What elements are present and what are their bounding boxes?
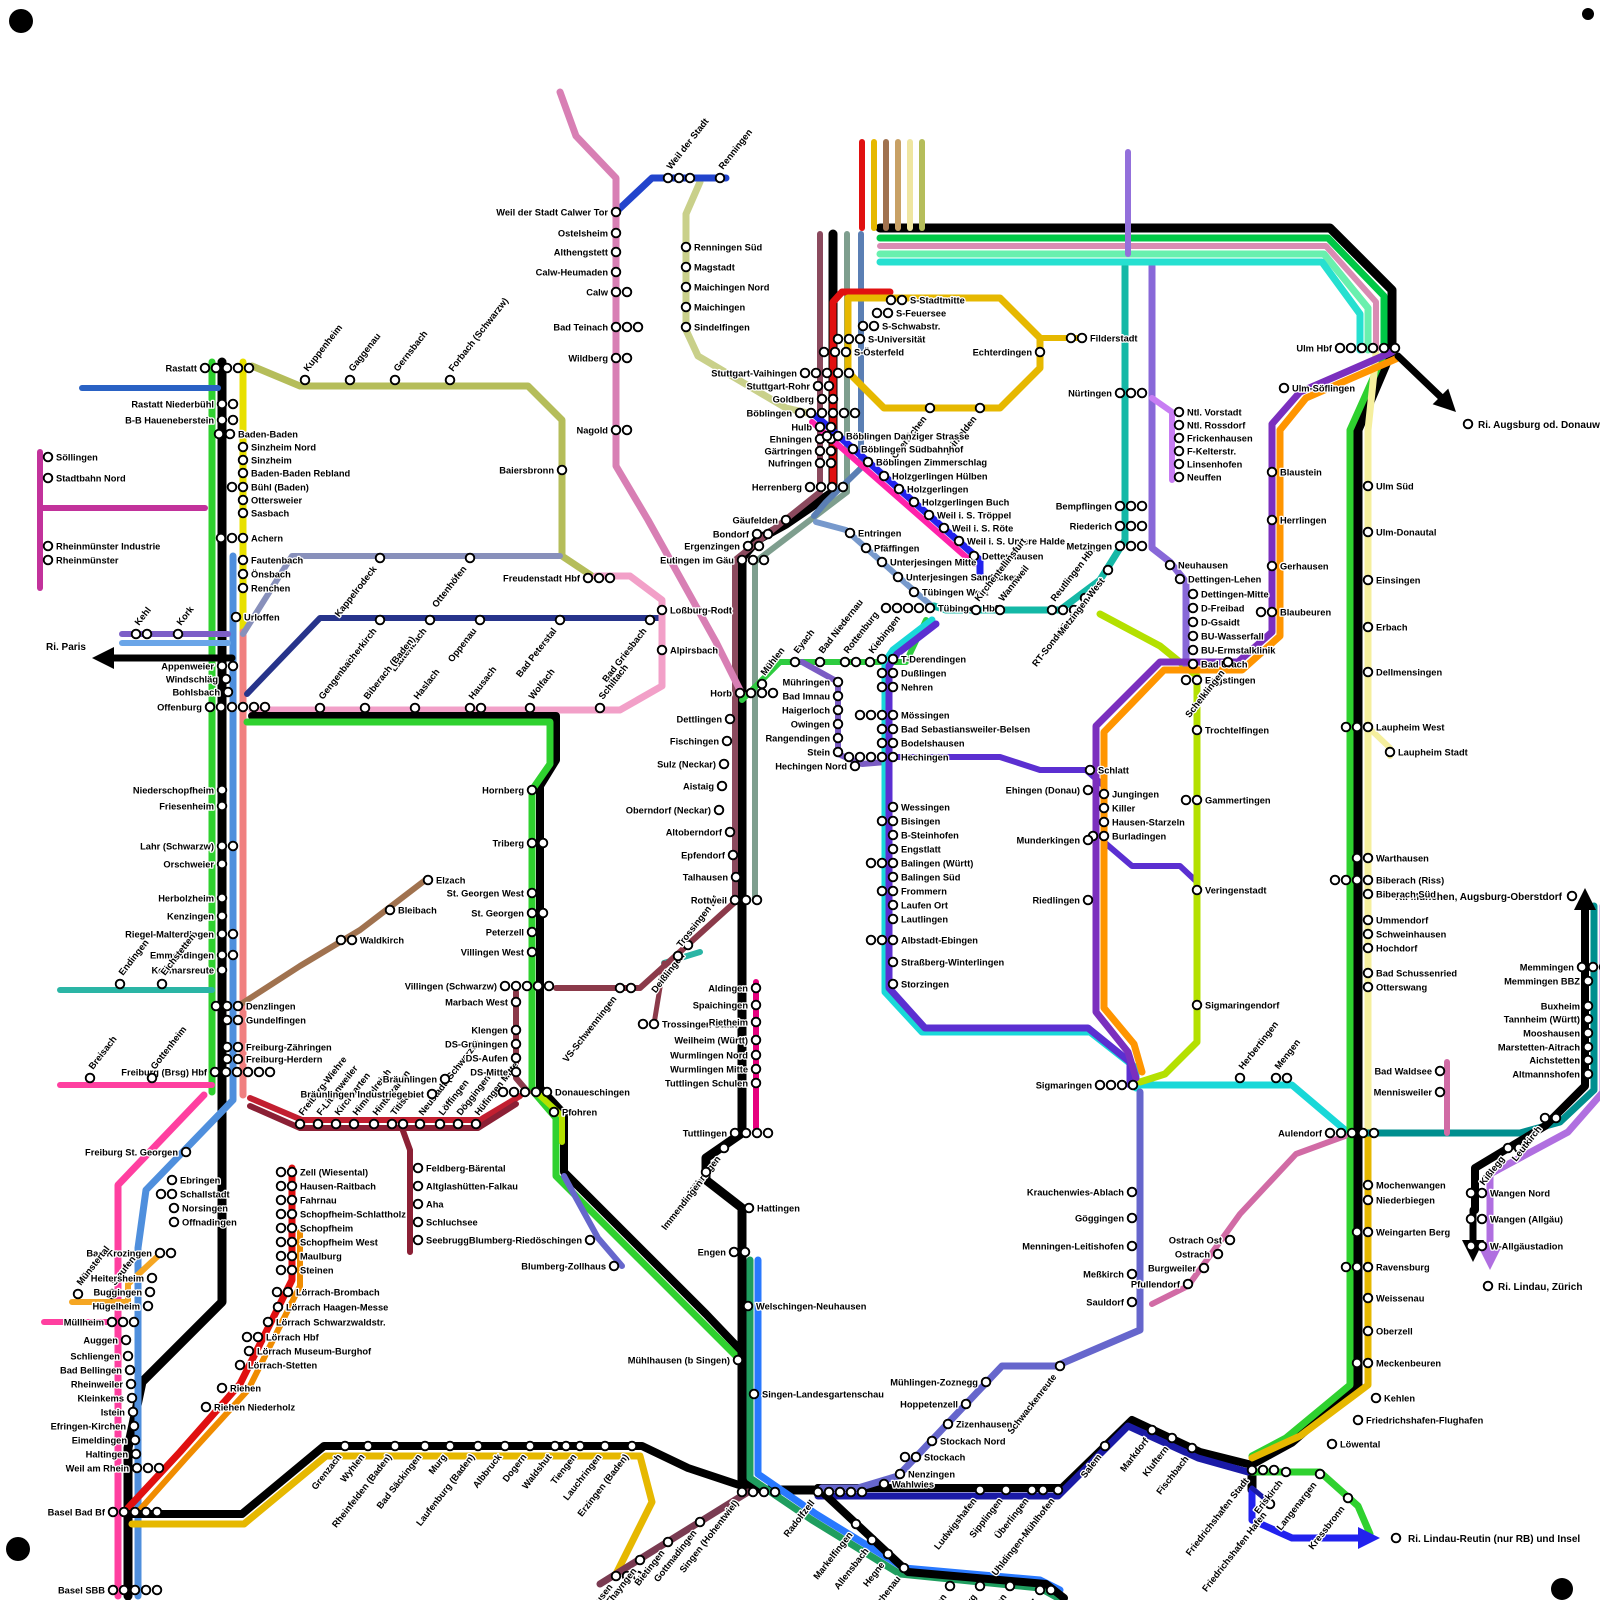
station-marker bbox=[1036, 348, 1045, 357]
station-marker bbox=[889, 711, 898, 720]
station-marker bbox=[658, 646, 667, 655]
station-marker bbox=[894, 573, 903, 582]
station-label: Haltingen bbox=[86, 1449, 129, 1459]
station-label: Söllingen bbox=[56, 452, 98, 462]
station-marker bbox=[1270, 1466, 1279, 1475]
station-marker bbox=[610, 1262, 619, 1271]
station-label: Altoberndorf bbox=[666, 827, 723, 837]
station-label: Weingarten Berg bbox=[1376, 1227, 1451, 1237]
station-label: Fahrnau bbox=[300, 1195, 337, 1205]
station-marker bbox=[288, 1266, 297, 1275]
station-marker bbox=[845, 335, 854, 344]
station-label: Ebringen bbox=[180, 1175, 221, 1185]
station-marker bbox=[528, 928, 537, 937]
station-marker bbox=[250, 703, 259, 712]
station-marker bbox=[755, 542, 764, 551]
station-label: Wangen (Allgäu) bbox=[1490, 1214, 1563, 1224]
direction-arrow-label: Ri. Lindau-Reutin (nur RB) und Insel bbox=[1408, 1534, 1580, 1545]
station-marker bbox=[1347, 344, 1356, 353]
station-label: Bad Waldsee bbox=[1374, 1066, 1432, 1076]
station-label: Altmannshofen bbox=[1512, 1069, 1580, 1079]
station-label: Lörrach-Stetten bbox=[248, 1360, 318, 1370]
station-marker bbox=[130, 1318, 139, 1327]
station-marker bbox=[834, 734, 843, 743]
station-marker bbox=[753, 530, 762, 539]
direction-arrow-label: Ri. Augsburg od. Donauwörth bbox=[1478, 420, 1600, 431]
station-label: Goldberg bbox=[773, 394, 815, 404]
station-marker bbox=[1128, 1188, 1137, 1197]
station-marker bbox=[823, 369, 832, 378]
station-marker bbox=[108, 1318, 117, 1327]
station-label: Ludwigshafen bbox=[932, 1496, 979, 1552]
station-label: Loßburg-Rodt bbox=[670, 605, 732, 615]
station-label: Ostelsheim bbox=[558, 228, 608, 238]
station-marker bbox=[910, 588, 919, 597]
station-marker bbox=[1138, 522, 1147, 531]
station-marker bbox=[314, 1120, 323, 1129]
station-label: Menningen-Leitishofen bbox=[1022, 1241, 1124, 1251]
station-label: Maichingen Nord bbox=[694, 282, 770, 292]
station-label: Efringen-Kirchen bbox=[51, 1421, 127, 1431]
station-marker bbox=[856, 711, 865, 720]
station-marker bbox=[229, 662, 238, 671]
station-label: Basel SBB bbox=[58, 1585, 105, 1595]
direction-arrow-head bbox=[92, 647, 114, 669]
station-marker bbox=[858, 1488, 867, 1497]
station-marker bbox=[1584, 977, 1593, 986]
station-marker bbox=[155, 1464, 164, 1473]
station-marker bbox=[229, 416, 238, 425]
station-marker bbox=[639, 1020, 648, 1029]
station-label: Weil der Stadt Calwer Tor bbox=[496, 207, 608, 217]
station-label: Rangendingen bbox=[765, 733, 830, 743]
station-marker bbox=[1054, 1486, 1063, 1495]
station-label: Sindelfingen bbox=[694, 322, 750, 332]
station-marker bbox=[880, 1480, 889, 1489]
station-marker bbox=[716, 174, 725, 183]
station-marker bbox=[1584, 1015, 1593, 1024]
station-label: Welschingen-Neuhausen bbox=[756, 1301, 867, 1311]
station-marker bbox=[675, 174, 684, 183]
station-marker bbox=[370, 1120, 379, 1129]
station-marker bbox=[1116, 522, 1125, 531]
station-label: Hausen-Starzeln bbox=[1112, 817, 1185, 827]
station-label: Immendingen bbox=[659, 1178, 704, 1232]
station-label: Feldberg-Bärental bbox=[426, 1163, 506, 1173]
direction-arrow-label: Ri. Lindau, Zürich bbox=[1498, 1282, 1582, 1293]
station-marker bbox=[889, 887, 898, 896]
station-label: Sulz (Neckar) bbox=[657, 759, 716, 769]
station-marker bbox=[1200, 1264, 1209, 1273]
station-marker bbox=[386, 906, 395, 915]
station-marker bbox=[816, 423, 825, 432]
station-label: Böblingen Zimmerschlag bbox=[876, 457, 987, 467]
station-marker bbox=[1584, 1002, 1593, 1011]
station-label: Gerhausen bbox=[1280, 561, 1329, 571]
station-marker bbox=[1259, 1466, 1268, 1475]
station-marker bbox=[466, 704, 475, 713]
station-marker bbox=[878, 739, 887, 748]
station-marker bbox=[1036, 1586, 1045, 1595]
station-marker bbox=[752, 1065, 761, 1074]
station-marker bbox=[1478, 1189, 1487, 1198]
rail-line bbox=[1368, 354, 1376, 1133]
station-marker bbox=[131, 1586, 140, 1595]
station-marker bbox=[1214, 1250, 1223, 1259]
station-label: Burgweiler bbox=[1148, 1263, 1196, 1273]
station-marker bbox=[436, 1120, 445, 1129]
station-label: Riegel-Malterdingen bbox=[125, 929, 214, 939]
station-marker bbox=[1138, 389, 1147, 398]
station-label: Freiburg St. Georgen bbox=[85, 1147, 178, 1157]
station-marker bbox=[900, 1564, 909, 1573]
station-marker bbox=[44, 542, 53, 551]
station-marker bbox=[466, 554, 475, 563]
station-marker bbox=[1028, 1486, 1037, 1495]
station-label: Eyach bbox=[792, 627, 817, 655]
station-marker bbox=[274, 1303, 283, 1312]
station-marker bbox=[867, 859, 876, 868]
station-marker bbox=[878, 711, 887, 720]
station-marker bbox=[696, 1518, 705, 1527]
station-label: Aichstetten bbox=[1529, 1055, 1580, 1065]
station-marker bbox=[1268, 608, 1277, 617]
station-marker bbox=[650, 1020, 659, 1029]
station-marker bbox=[1002, 1486, 1011, 1495]
rail-network-map: Ri. ParisRi. Augsburg od. DonauwörthRi. … bbox=[0, 0, 1600, 1600]
station-label: VS-Schwenningen bbox=[561, 994, 619, 1064]
station-label: Ehningen bbox=[770, 434, 813, 444]
station-marker bbox=[827, 459, 836, 468]
station-marker bbox=[731, 1129, 740, 1138]
station-marker bbox=[816, 658, 825, 667]
station-marker bbox=[901, 1453, 910, 1462]
station-marker bbox=[532, 1088, 541, 1097]
station-marker bbox=[1584, 1056, 1593, 1065]
station-marker bbox=[940, 524, 949, 533]
station-label: Blumberg-Riedöschingen bbox=[469, 1235, 582, 1245]
station-marker bbox=[1353, 1228, 1362, 1237]
station-marker bbox=[1364, 576, 1373, 585]
station-marker bbox=[168, 1176, 177, 1185]
station-marker bbox=[1189, 660, 1198, 669]
rail-line bbox=[686, 182, 812, 414]
station-label: Fischingen bbox=[670, 736, 719, 746]
station-label: BU-Wasserfall bbox=[1201, 631, 1264, 641]
station-marker bbox=[829, 395, 838, 404]
station-label: Seebrugg bbox=[426, 1235, 469, 1245]
station-marker bbox=[742, 896, 751, 905]
station-label: Hegne bbox=[861, 1560, 886, 1589]
station-marker bbox=[734, 1356, 743, 1365]
station-label: Ottersweier bbox=[251, 495, 303, 505]
station-label: Schlatt bbox=[1098, 765, 1129, 775]
station-marker bbox=[1359, 1129, 1368, 1138]
station-marker bbox=[1364, 876, 1373, 885]
station-marker bbox=[1578, 963, 1587, 972]
station-label: Ummendorf bbox=[1376, 915, 1429, 925]
station-marker bbox=[1372, 1394, 1381, 1403]
station-marker bbox=[1048, 606, 1057, 615]
station-marker bbox=[1039, 1486, 1048, 1495]
station-marker bbox=[829, 409, 838, 418]
station-label: Eriskirch bbox=[1252, 1478, 1285, 1516]
station-marker bbox=[744, 1302, 753, 1311]
station-marker bbox=[218, 662, 227, 671]
station-marker bbox=[1364, 983, 1373, 992]
station-marker bbox=[277, 1168, 286, 1177]
station-label: Villingen West bbox=[461, 947, 524, 957]
station-marker bbox=[846, 529, 855, 538]
station-label: Renningen Süd bbox=[694, 242, 762, 252]
station-marker bbox=[148, 1074, 157, 1083]
station-label: Kehlen bbox=[1384, 1393, 1415, 1403]
station-label: Kork bbox=[175, 604, 196, 628]
station-label: Bondorf bbox=[713, 529, 750, 539]
station-label: Unterjesingen Mitte bbox=[890, 557, 976, 567]
station-marker bbox=[1342, 876, 1351, 885]
station-marker bbox=[446, 376, 455, 385]
station-marker bbox=[636, 1556, 645, 1565]
station-label: Stuttgart-Vaihingen bbox=[711, 368, 797, 378]
station-label: Istein bbox=[101, 1407, 126, 1417]
station-label: Freudenstadt Hbf bbox=[503, 573, 581, 583]
station-marker bbox=[836, 1488, 845, 1497]
station-marker bbox=[1353, 723, 1362, 732]
station-label: Ravensburg bbox=[1376, 1262, 1430, 1272]
station-marker bbox=[130, 1422, 139, 1431]
station-label: Weil der Stadt bbox=[665, 116, 711, 171]
station-marker bbox=[1342, 1263, 1351, 1272]
station-label: Mühlingen-Zoznegg bbox=[890, 1377, 978, 1387]
station-marker bbox=[889, 803, 898, 812]
station-marker bbox=[521, 1088, 530, 1097]
station-marker bbox=[1268, 562, 1277, 571]
station-marker bbox=[732, 873, 741, 882]
station-marker bbox=[217, 534, 226, 543]
station-marker bbox=[856, 753, 865, 762]
station-label: Gernsbach bbox=[392, 329, 430, 374]
station-label: Baiersbronn bbox=[499, 465, 554, 475]
station-marker bbox=[827, 447, 836, 456]
rail-line bbox=[1136, 1085, 1345, 1130]
station-marker bbox=[202, 1403, 211, 1412]
station-label: Tübingen Hbf bbox=[938, 603, 999, 613]
station-marker bbox=[1272, 1074, 1281, 1083]
rail-line bbox=[402, 1128, 410, 1252]
station-marker bbox=[142, 1586, 151, 1595]
station-marker bbox=[817, 483, 826, 492]
station-label: Gengenbach bbox=[317, 650, 360, 701]
station-label: Bad Teinach bbox=[553, 322, 608, 332]
station-marker bbox=[1589, 963, 1598, 972]
station-label: Schluchsee bbox=[426, 1217, 478, 1227]
station-marker bbox=[512, 1054, 521, 1063]
station-marker bbox=[428, 1090, 437, 1099]
station-marker bbox=[870, 322, 879, 331]
station-marker bbox=[749, 1488, 758, 1497]
station-label: Engen bbox=[698, 1247, 727, 1257]
station-label: Pfäffingen bbox=[874, 543, 920, 553]
station-marker bbox=[558, 466, 567, 475]
station-label: Gärtringen bbox=[764, 446, 812, 456]
rail-line bbox=[735, 234, 820, 900]
station-label: Sigmaringendorf bbox=[1205, 1000, 1280, 1010]
station-label: Peterzell bbox=[486, 927, 524, 937]
station-marker bbox=[852, 1520, 861, 1529]
station-label: S-Schwabstr. bbox=[882, 321, 940, 331]
station-label: Aulendorf bbox=[1278, 1128, 1323, 1138]
station-marker bbox=[612, 1572, 621, 1581]
station-label: Horb bbox=[710, 688, 732, 698]
station-marker bbox=[889, 980, 898, 989]
station-marker bbox=[170, 1218, 179, 1227]
station-marker bbox=[812, 369, 821, 378]
station-label: Wildberg bbox=[568, 353, 608, 363]
station-marker bbox=[364, 1442, 373, 1451]
station-label: Alpirsbach bbox=[670, 645, 718, 655]
station-marker bbox=[414, 1182, 423, 1191]
station-label: Holzgerlingen Buch bbox=[922, 497, 1010, 507]
station-label: Sigmaringen bbox=[1036, 1080, 1093, 1090]
station-marker bbox=[889, 958, 898, 967]
station-marker bbox=[234, 1002, 243, 1011]
station-marker bbox=[551, 1442, 560, 1451]
station-marker bbox=[1078, 334, 1087, 343]
station-label: Aistaig bbox=[683, 781, 714, 791]
station-marker bbox=[753, 896, 762, 905]
station-marker bbox=[132, 1450, 141, 1459]
station-label: Elzach bbox=[436, 875, 466, 885]
station-label: St. Georgen West bbox=[447, 888, 524, 898]
station-marker bbox=[388, 1120, 397, 1129]
station-label: Bempflingen bbox=[1056, 501, 1113, 511]
station-marker bbox=[1193, 726, 1202, 735]
station-marker bbox=[133, 1464, 142, 1473]
station-label: Kappelrodeck bbox=[333, 563, 379, 618]
station-marker bbox=[889, 915, 898, 924]
station-marker bbox=[288, 1238, 297, 1247]
station-marker bbox=[796, 409, 805, 418]
station-marker bbox=[446, 1442, 455, 1451]
station-marker bbox=[1541, 1114, 1550, 1123]
station-marker bbox=[350, 1120, 359, 1129]
station-marker bbox=[878, 817, 887, 826]
station-label: Ostrach Ost bbox=[1169, 1235, 1222, 1245]
station-marker bbox=[1370, 1129, 1379, 1138]
station-label: Rheinmünster bbox=[56, 555, 119, 565]
station-label: Villingen (Schwarzw) bbox=[405, 981, 497, 991]
station-marker bbox=[1193, 676, 1202, 685]
station-label: Haslach bbox=[412, 667, 442, 702]
station-marker bbox=[132, 630, 141, 639]
station-label: Baden-Baden Rebland bbox=[251, 468, 351, 478]
station-marker bbox=[376, 554, 385, 563]
station-marker bbox=[1118, 1081, 1127, 1090]
station-marker bbox=[878, 859, 887, 868]
station-marker bbox=[1096, 1081, 1105, 1090]
station-label: B-Steinhofen bbox=[901, 830, 959, 840]
station-marker bbox=[682, 243, 691, 252]
station-marker bbox=[348, 936, 357, 945]
station-marker bbox=[816, 459, 825, 468]
station-marker bbox=[556, 616, 565, 625]
station-marker bbox=[239, 443, 248, 452]
station-marker bbox=[1168, 1434, 1177, 1443]
station-label: Herrlingen bbox=[1280, 515, 1327, 525]
station-marker bbox=[167, 1249, 176, 1258]
station-label: Blaustein bbox=[1280, 467, 1322, 477]
station-label: Mengen bbox=[1273, 1037, 1303, 1071]
station-label: Eutingen im Gäu bbox=[660, 555, 734, 565]
station-marker bbox=[1380, 344, 1389, 353]
station-marker bbox=[218, 894, 227, 903]
station-marker bbox=[284, 1288, 293, 1297]
station-label: Epfendorf bbox=[681, 850, 726, 860]
station-marker bbox=[867, 753, 876, 762]
station-label: Meckenbeuren bbox=[1376, 1358, 1441, 1368]
station-label: Nagold bbox=[576, 425, 608, 435]
station-marker bbox=[834, 678, 843, 687]
station-marker bbox=[628, 1442, 637, 1451]
rail-line bbox=[616, 178, 726, 298]
station-marker bbox=[1189, 646, 1198, 655]
station-label: Mühringen bbox=[782, 677, 830, 687]
station-marker bbox=[806, 483, 815, 492]
station-label: BU-Ermstalklinik bbox=[1201, 645, 1276, 655]
station-marker bbox=[254, 1333, 263, 1342]
station-label: Ntl. Rossdorf bbox=[1187, 420, 1246, 430]
direction-arrow-head bbox=[1574, 888, 1596, 910]
station-marker bbox=[752, 1079, 761, 1088]
station-marker bbox=[277, 1238, 286, 1247]
station-marker bbox=[1353, 1263, 1362, 1272]
station-marker bbox=[1358, 344, 1367, 353]
station-label: Breisach bbox=[87, 1034, 119, 1071]
station-label: Schopfheim-Schlattholz bbox=[300, 1209, 406, 1219]
station-marker bbox=[1107, 1081, 1116, 1090]
station-label: Blaubeuren bbox=[1280, 607, 1331, 617]
station-marker bbox=[218, 1384, 227, 1393]
station-label: Böblingen bbox=[747, 408, 793, 418]
station-marker bbox=[228, 483, 237, 492]
station-label: Kuppenheim bbox=[302, 323, 345, 374]
station-marker bbox=[211, 1068, 220, 1077]
station-marker bbox=[116, 980, 125, 989]
station-marker bbox=[1193, 886, 1202, 895]
station-label: Offnadingen bbox=[182, 1217, 237, 1227]
station-marker bbox=[996, 606, 1005, 615]
station-marker bbox=[1100, 832, 1109, 841]
station-marker bbox=[893, 604, 902, 613]
station-marker bbox=[1193, 796, 1202, 805]
station-marker bbox=[562, 1442, 571, 1451]
station-marker bbox=[1478, 1215, 1487, 1224]
station-label: Dellmensingen bbox=[1376, 667, 1442, 677]
station-label: Zizenhausen bbox=[956, 1419, 1013, 1429]
station-marker bbox=[834, 432, 843, 441]
station-marker bbox=[682, 323, 691, 332]
station-marker bbox=[277, 1196, 286, 1205]
station-marker bbox=[702, 1168, 711, 1177]
station-marker bbox=[124, 1352, 133, 1361]
station-marker bbox=[416, 1120, 425, 1129]
station-marker bbox=[337, 936, 346, 945]
station-marker bbox=[682, 263, 691, 272]
station-label: Böblingen Südbahnhof bbox=[861, 444, 964, 454]
station-label: Wolfach bbox=[527, 666, 557, 701]
station-marker bbox=[1364, 944, 1373, 953]
